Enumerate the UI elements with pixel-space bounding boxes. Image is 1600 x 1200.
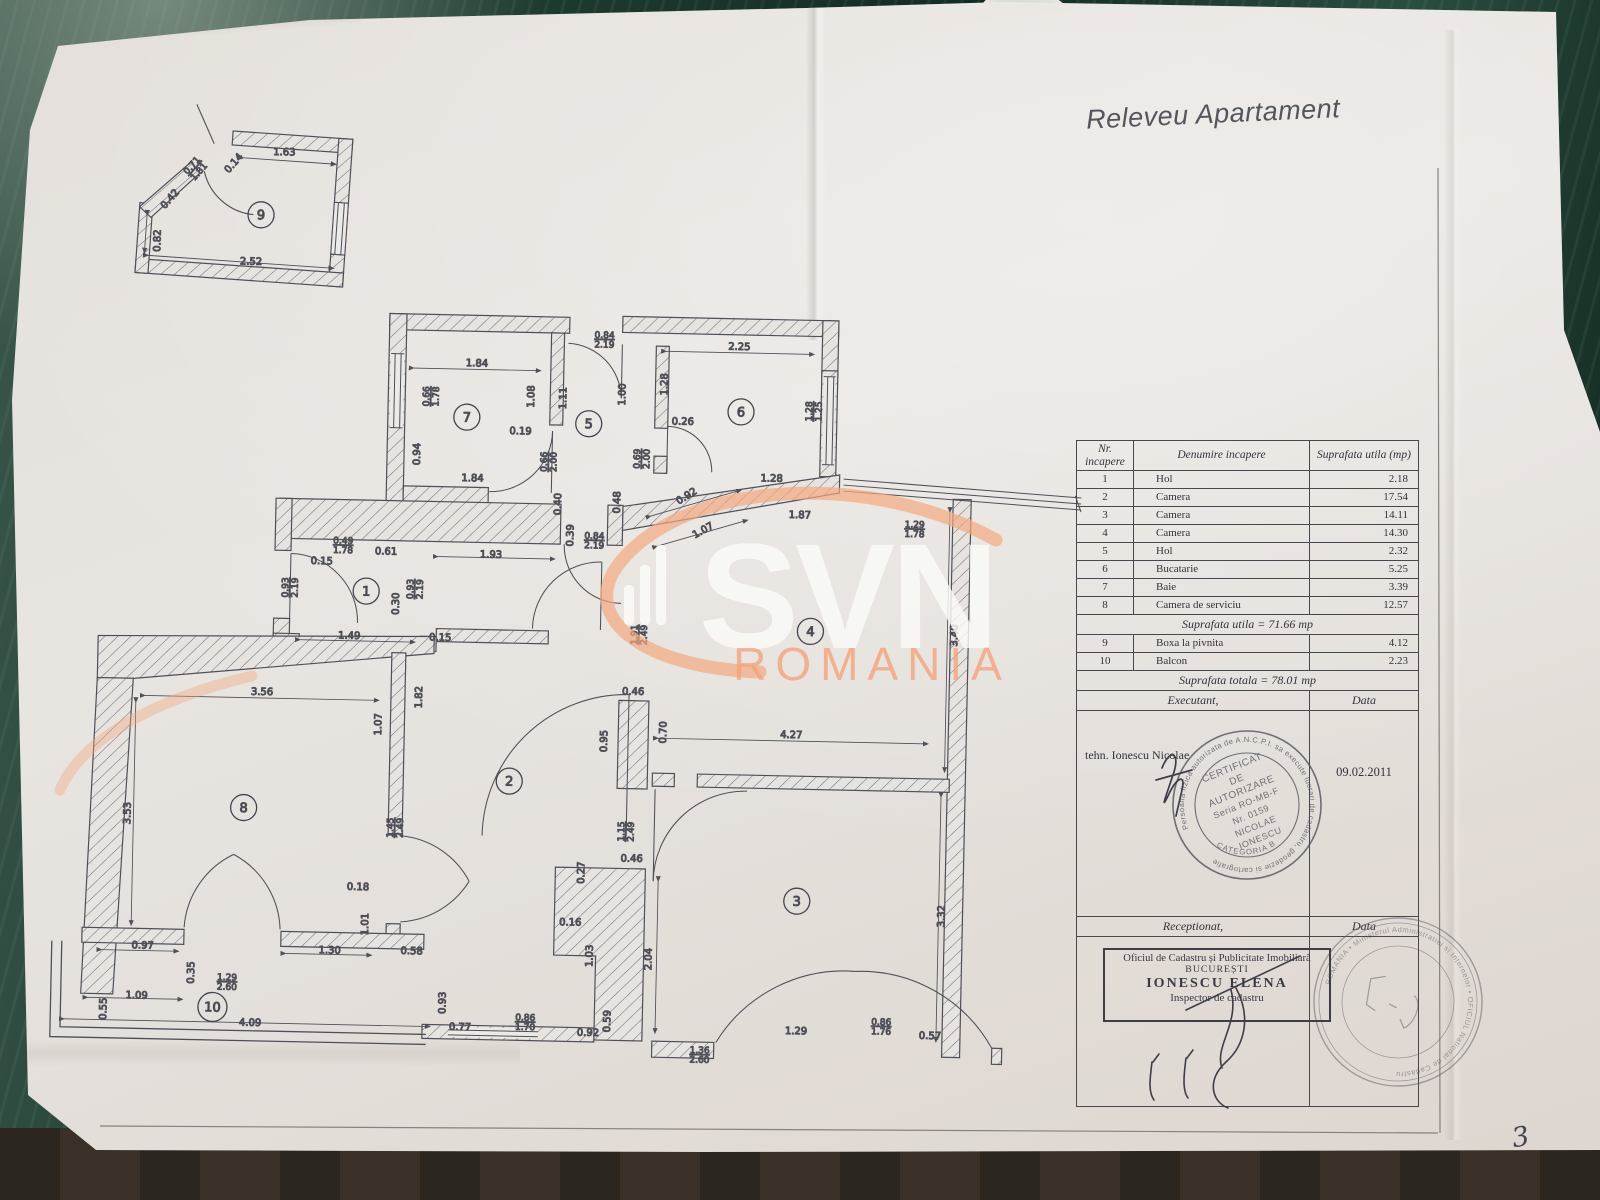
svg-text:ROMANIA • Ministerul Administr: ROMANIA • Ministerul Administratiei si I…: [1305, 909, 1491, 1094]
ocpi-line-city: BUCUREȘTI: [1105, 964, 1329, 975]
ocpi-line-name: IONESCU ELENA: [1105, 976, 1329, 992]
document-paper: 12345678910 1.630.140.711.810.420.822.52…: [0, 0, 1600, 1200]
ocpi-line-office: Oficiul de Cadastru și Publicitate Imobi…: [1105, 953, 1329, 964]
round-stamp-ring-text: ROMANIA • Ministerul Administratiei si I…: [1305, 909, 1491, 1094]
scanned-floor-plan-page: { "page": { "title": "Releveu Apartament…: [0, 0, 1600, 1200]
ocpi-line-role: Inspector de cadastru: [1105, 992, 1329, 1004]
certificat-stamp: Persoana fizica autorizata de A.N.C.P.I.…: [1151, 709, 1344, 902]
ocpi-box-stamp: Oficiul de Cadastru și Publicitate Imobi…: [1103, 948, 1331, 1022]
stamps-overlay: Persoana fizica autorizata de A.N.C.P.I.…: [0, 0, 1600, 1200]
stamp-emblem-icon: [1361, 973, 1423, 1030]
